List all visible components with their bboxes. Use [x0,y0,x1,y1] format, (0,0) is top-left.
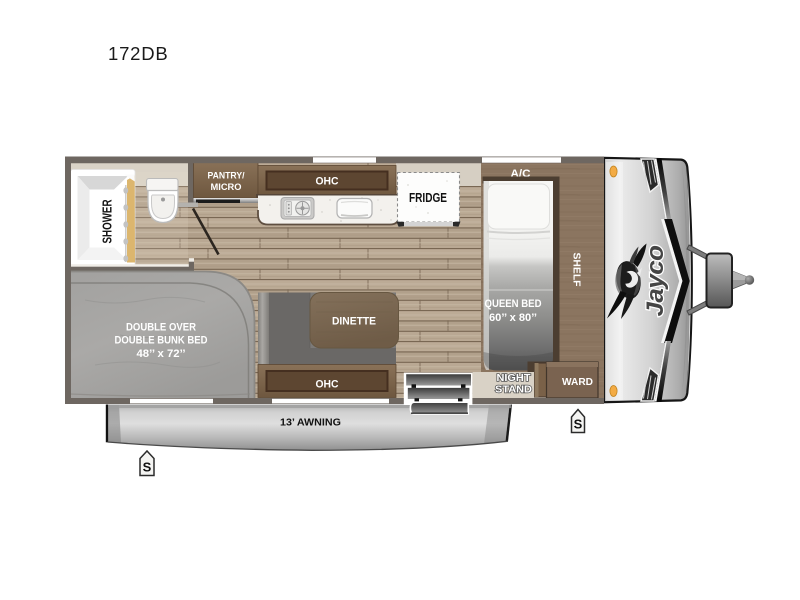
svg-text:Jayco: Jayco [642,246,669,317]
svg-text:60’’ x 80’’: 60’’ x 80’’ [489,312,537,324]
svg-text:DINETTE: DINETTE [332,316,376,328]
svg-text:PANTRY/: PANTRY/ [208,171,245,182]
svg-text:DOUBLE OVER: DOUBLE OVER [126,322,196,334]
svg-text:13’ AWNING: 13’ AWNING [280,417,341,429]
svg-text:FRIDGE: FRIDGE [409,191,447,205]
svg-text:OHC: OHC [316,379,339,391]
svg-text:MICRO: MICRO [211,182,242,193]
svg-text:SHELF: SHELF [571,253,583,288]
svg-text:S: S [143,460,152,475]
svg-text:SHOWER: SHOWER [100,199,115,243]
svg-text:STAND: STAND [495,385,532,396]
svg-text:WARD: WARD [562,376,593,388]
svg-text:NIGHT: NIGHT [497,373,532,384]
svg-text:S: S [574,417,583,432]
svg-text:OHC: OHC [316,176,339,188]
svg-text:DOUBLE BUNK BED: DOUBLE BUNK BED [115,335,208,347]
svg-text:172DB: 172DB [108,43,169,64]
svg-text:QUEEN BED: QUEEN BED [485,298,542,310]
svg-text:48’’ x 72’’: 48’’ x 72’’ [137,348,186,360]
